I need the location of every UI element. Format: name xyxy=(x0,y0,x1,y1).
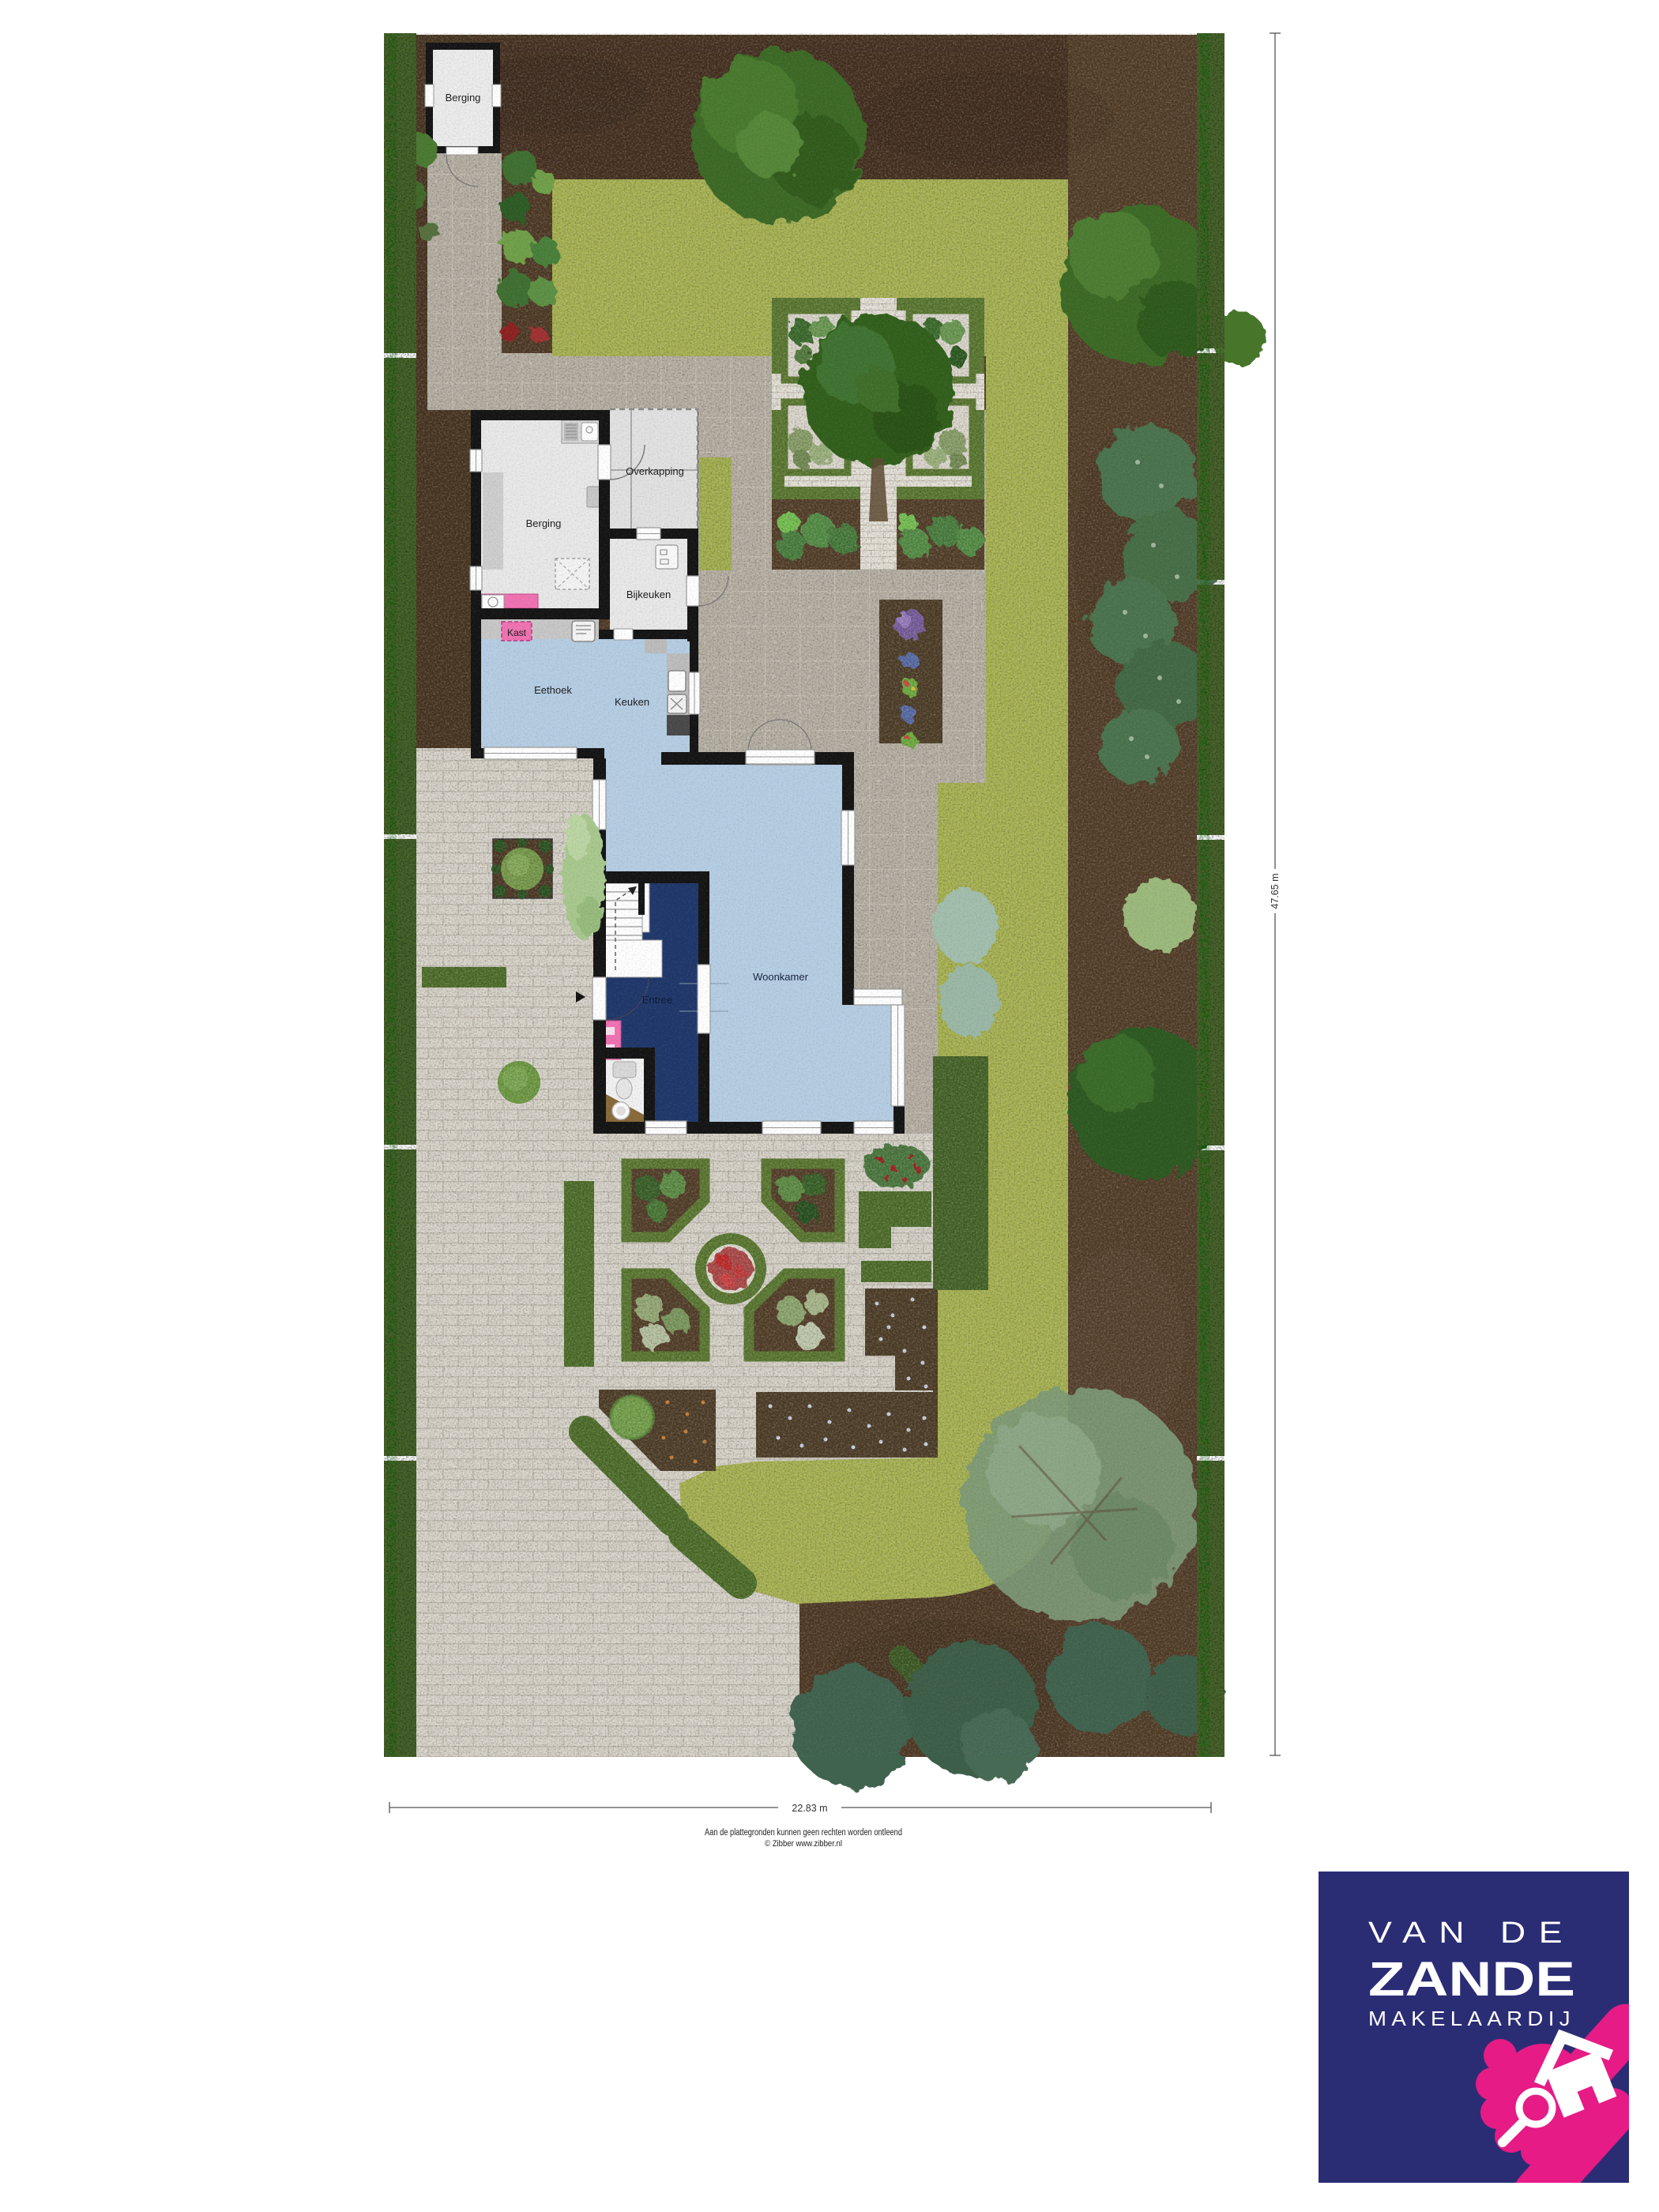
svg-text:47.65 m: 47.65 m xyxy=(1270,873,1281,908)
svg-text:Aan de plattegronden kunnen ge: Aan de plattegronden kunnen geen rechten… xyxy=(705,1828,902,1838)
svg-text:© Zibber www.zibber.nl: © Zibber www.zibber.nl xyxy=(765,1839,842,1849)
svg-text:MAKELAARDIJ: MAKELAARDIJ xyxy=(1368,2007,1575,2030)
svg-text:VAN DE: VAN DE xyxy=(1368,1917,1575,1950)
svg-text:22.83 m: 22.83 m xyxy=(792,1803,827,1814)
svg-text:ZANDE: ZANDE xyxy=(1368,1952,1575,2006)
